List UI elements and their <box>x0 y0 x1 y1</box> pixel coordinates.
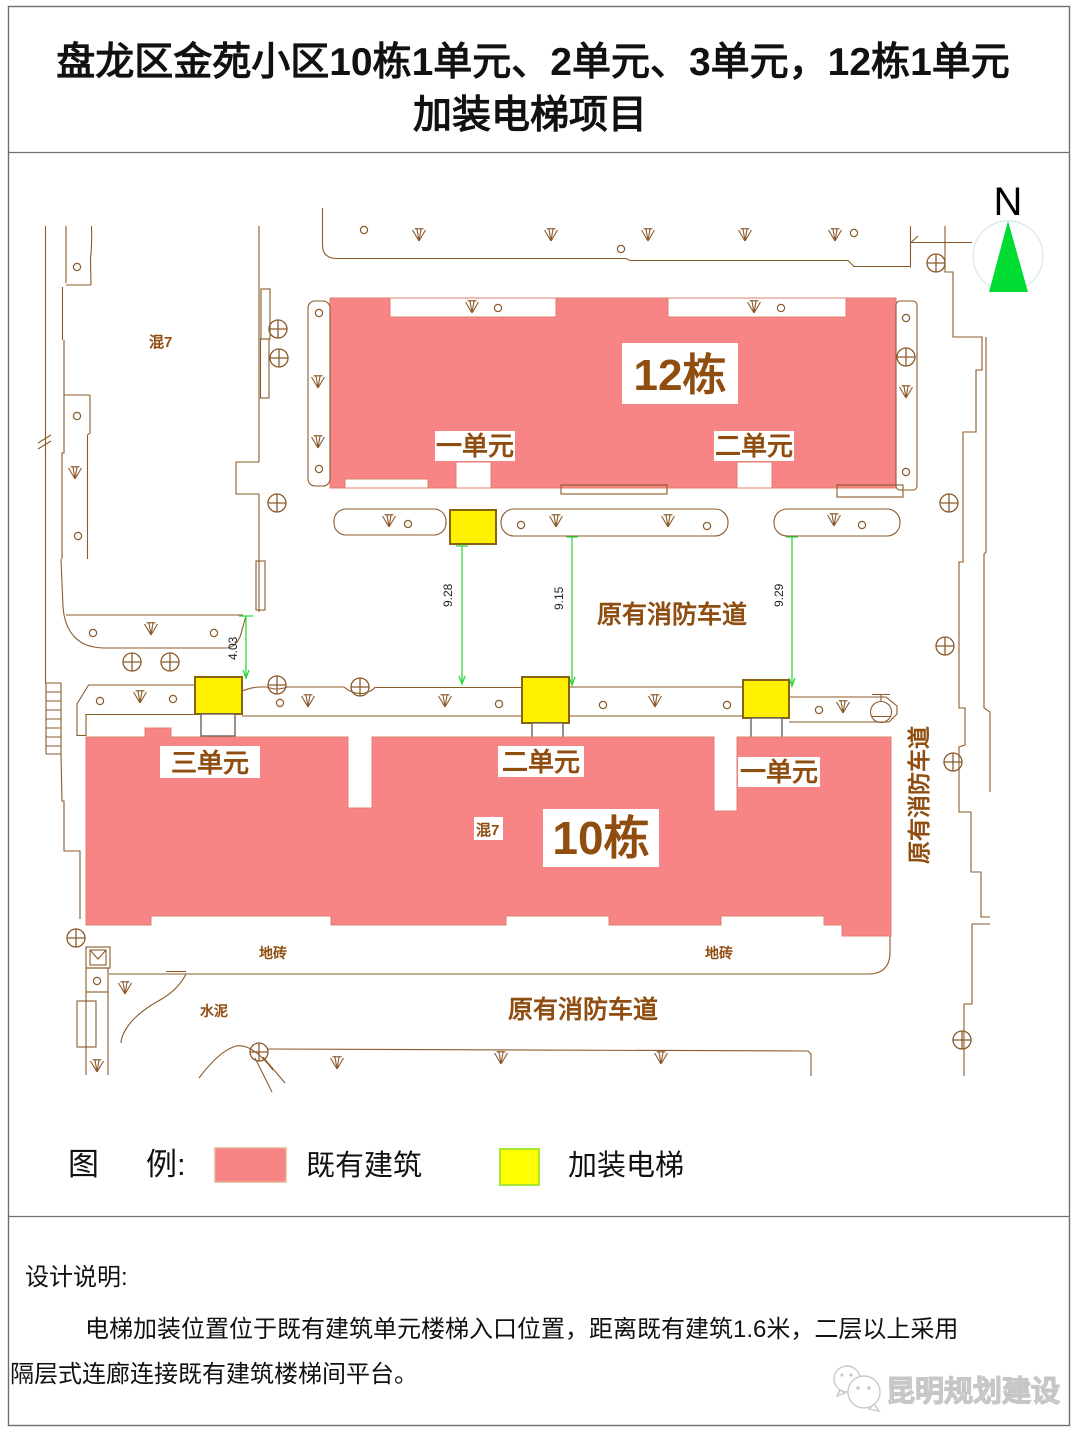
svg-text:昆明规划建设: 昆明规划建设 <box>886 1375 1060 1408</box>
svg-text:加装电梯: 加装电梯 <box>568 1149 684 1182</box>
svg-text:N: N <box>994 180 1023 224</box>
svg-text:例:: 例: <box>146 1147 186 1182</box>
svg-text:10栋: 10栋 <box>552 812 649 864</box>
svg-text:地砖: 地砖 <box>705 945 733 961</box>
svg-text:盘龙区金苑小区10栋1单元、2单元、3单元，12栋1单元: 盘龙区金苑小区10栋1单元、2单元、3单元，12栋1单元 <box>56 40 1010 84</box>
svg-text:图: 图 <box>68 1147 99 1182</box>
svg-text:地砖: 地砖 <box>259 945 287 961</box>
svg-text:混7: 混7 <box>476 822 499 839</box>
svg-text:一单元: 一单元 <box>436 431 514 461</box>
svg-text:既有建筑: 既有建筑 <box>306 1149 422 1182</box>
svg-text:设计说明:: 设计说明: <box>25 1264 128 1291</box>
svg-text:一单元: 一单元 <box>740 757 818 787</box>
svg-text:二单元: 二单元 <box>715 431 793 461</box>
svg-text:原有消防车道: 原有消防车道 <box>906 726 932 864</box>
svg-text:9.29: 9.29 <box>772 583 786 607</box>
svg-text:原有消防车道: 原有消防车道 <box>508 995 658 1024</box>
svg-text:二单元: 二单元 <box>502 747 580 777</box>
svg-text:12栋: 12栋 <box>634 351 727 400</box>
svg-text:三单元: 三单元 <box>171 748 249 778</box>
svg-text:4.03: 4.03 <box>226 636 240 660</box>
svg-text:混7: 混7 <box>149 334 172 351</box>
svg-text:加装电梯项目: 加装电梯项目 <box>413 94 647 137</box>
svg-text:原有消防车道: 原有消防车道 <box>597 600 747 629</box>
svg-text:电梯加装位置位于既有建筑单元楼梯入口位置，距离既有建筑1.6: 电梯加装位置位于既有建筑单元楼梯入口位置，距离既有建筑1.6米，二层以上采用 <box>85 1316 958 1343</box>
svg-text:9.28: 9.28 <box>441 583 455 607</box>
svg-text:隔层式连廊连接既有建筑楼梯间平台。: 隔层式连廊连接既有建筑楼梯间平台。 <box>10 1361 418 1388</box>
svg-text:9.15: 9.15 <box>552 586 566 610</box>
svg-text:水泥: 水泥 <box>200 1003 228 1019</box>
